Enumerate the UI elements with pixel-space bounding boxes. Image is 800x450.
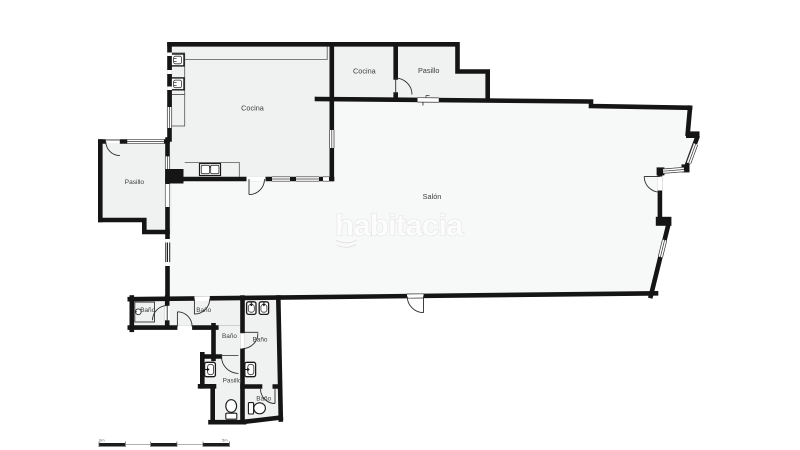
svg-text:Pasillo: Pasillo (418, 66, 440, 75)
svg-text:Cocina: Cocina (241, 104, 265, 113)
svg-text:5m: 5m (222, 438, 228, 443)
svg-text:0m: 0m (99, 438, 105, 443)
svg-text:Pasillo: Pasillo (125, 179, 145, 186)
svg-text:Baño: Baño (256, 396, 271, 403)
svg-text:Pasillo: Pasillo (223, 377, 242, 384)
svg-text:Baño: Baño (222, 333, 237, 340)
svg-text:habitacia: habitacia (335, 208, 464, 243)
svg-text:Baño: Baño (140, 307, 155, 314)
svg-text:Cocina: Cocina (353, 66, 377, 75)
svg-text:Salón: Salón (423, 192, 442, 201)
svg-text:Baño: Baño (253, 337, 268, 344)
svg-text:Baño: Baño (196, 307, 211, 314)
